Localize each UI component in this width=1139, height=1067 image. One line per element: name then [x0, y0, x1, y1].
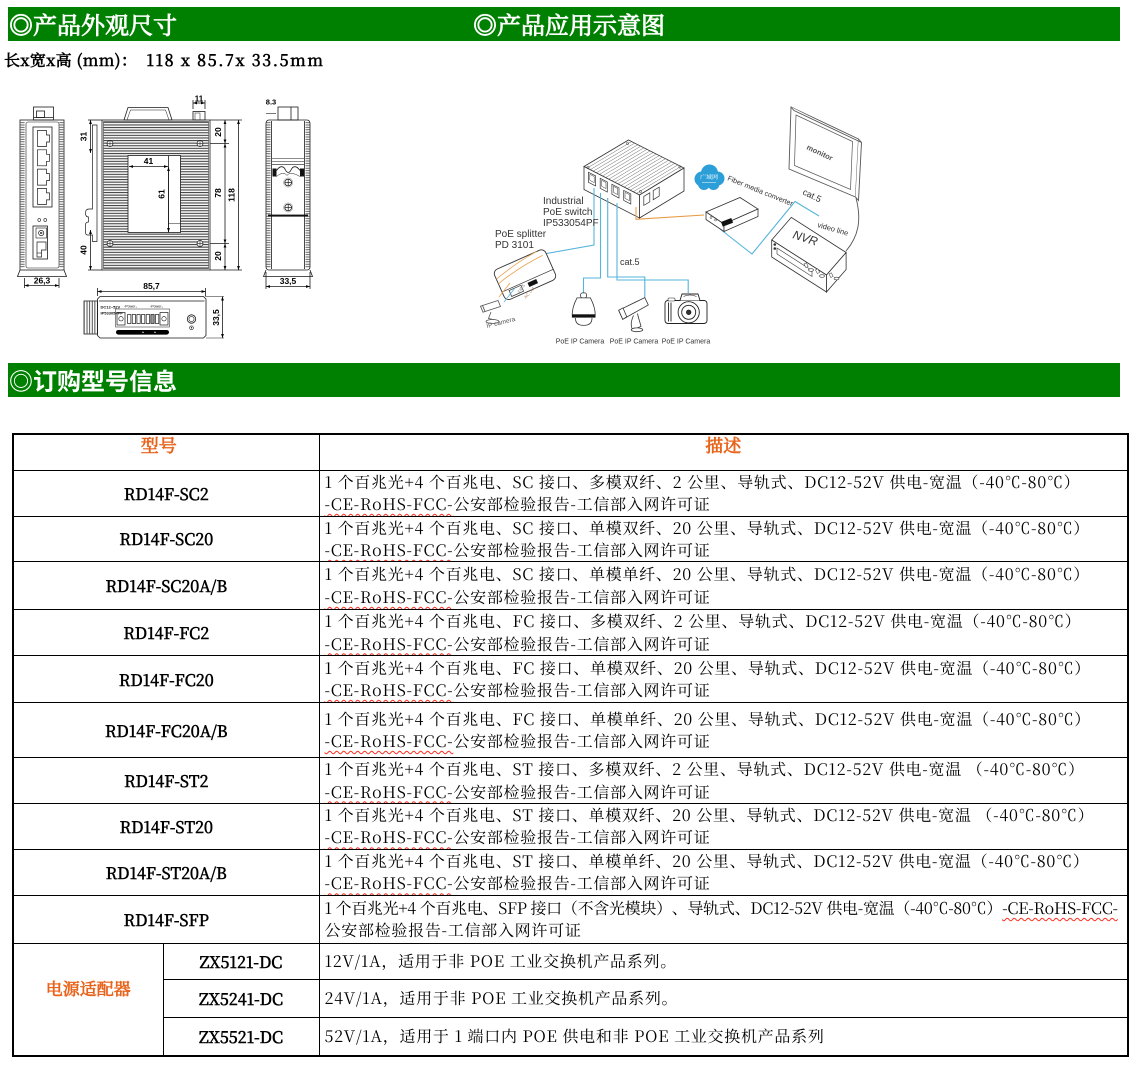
svg-text:40: 40 [79, 245, 89, 255]
svg-text:41: 41 [144, 156, 154, 166]
svg-text:IP533054PF: IP533054PF [101, 311, 124, 316]
svg-text:8.3: 8.3 [266, 98, 276, 107]
svg-text:20: 20 [213, 251, 223, 261]
svg-text:PoE IP Camera: PoE IP Camera [556, 339, 605, 346]
svg-text:Industrial: Industrial [543, 196, 584, 207]
svg-text:PoE IP Camera: PoE IP Camera [610, 339, 659, 346]
svg-text:PoE splitter: PoE splitter [495, 229, 547, 240]
svg-text:33,5: 33,5 [280, 276, 297, 286]
svg-text:◦Power₂: ◦Power₂ [150, 305, 163, 309]
svg-text:118: 118 [227, 188, 237, 202]
svg-text:广域网: 广域网 [700, 172, 718, 181]
svg-text:20: 20 [213, 127, 223, 137]
svg-text:61: 61 [157, 189, 167, 199]
svg-text:◦Power₁: ◦Power₁ [124, 305, 137, 309]
svg-text:31: 31 [79, 132, 89, 142]
svg-text:IP533054PF: IP533054PF [543, 218, 599, 229]
svg-text:cat.5: cat.5 [801, 187, 823, 205]
svg-text:11: 11 [195, 95, 204, 104]
svg-text:video line: video line [816, 220, 849, 237]
svg-text:85,7: 85,7 [143, 281, 160, 291]
svg-text:cat.5: cat.5 [620, 257, 640, 267]
svg-text:33,5: 33,5 [211, 309, 221, 326]
svg-text:26,3: 26,3 [34, 276, 51, 286]
svg-text:PoE IP Camera: PoE IP Camera [662, 339, 711, 346]
svg-text:PoE switch: PoE switch [543, 207, 592, 218]
svg-text:PD 3101: PD 3101 [495, 240, 534, 251]
svg-text:78: 78 [213, 188, 223, 198]
